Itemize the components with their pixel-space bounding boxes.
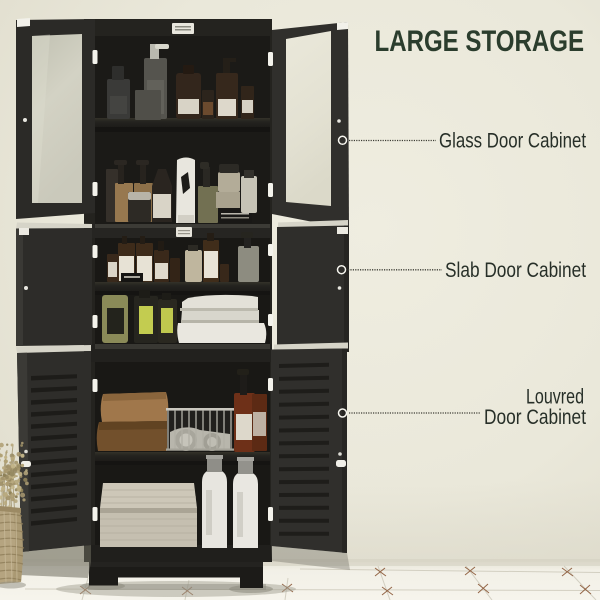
- svg-text:LARGE STORAGE: LARGE STORAGE: [375, 25, 585, 58]
- svg-text:Glass Door Cabinet: Glass Door Cabinet: [439, 130, 586, 153]
- svg-text:Slab Door Cabinet: Slab Door Cabinet: [445, 259, 586, 282]
- svg-text:Door Cabinet: Door Cabinet: [484, 406, 586, 429]
